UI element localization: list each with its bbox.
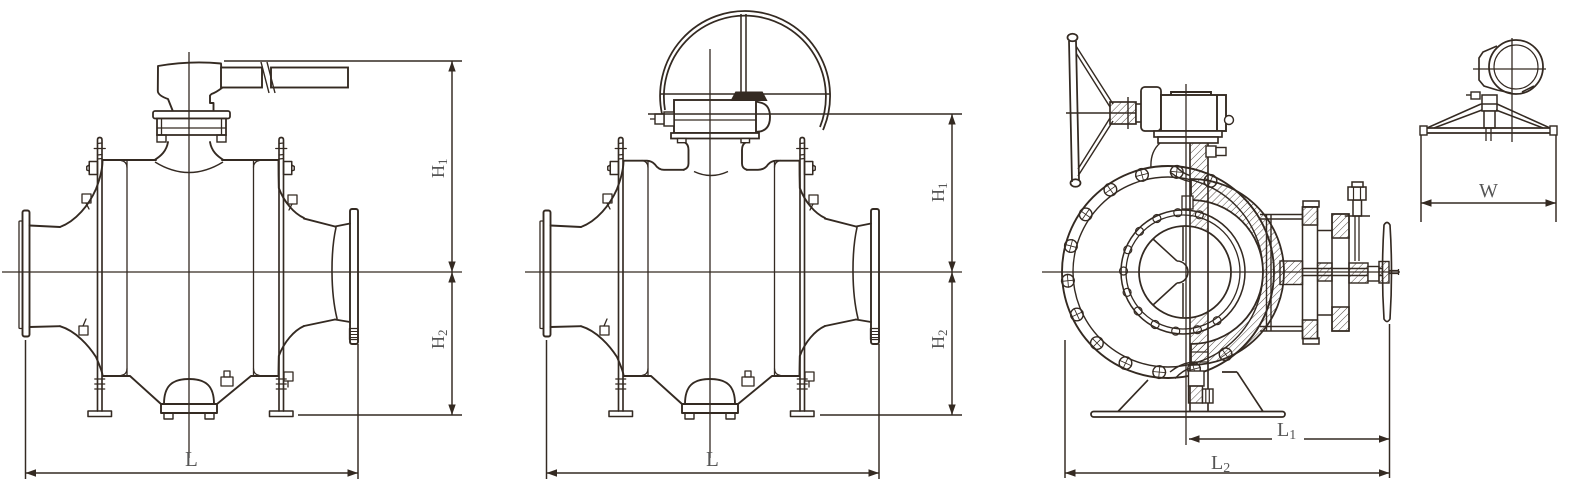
svg-text:L: L (185, 447, 198, 471)
svg-text:L: L (706, 447, 719, 471)
svg-text:W: W (1479, 180, 1498, 202)
